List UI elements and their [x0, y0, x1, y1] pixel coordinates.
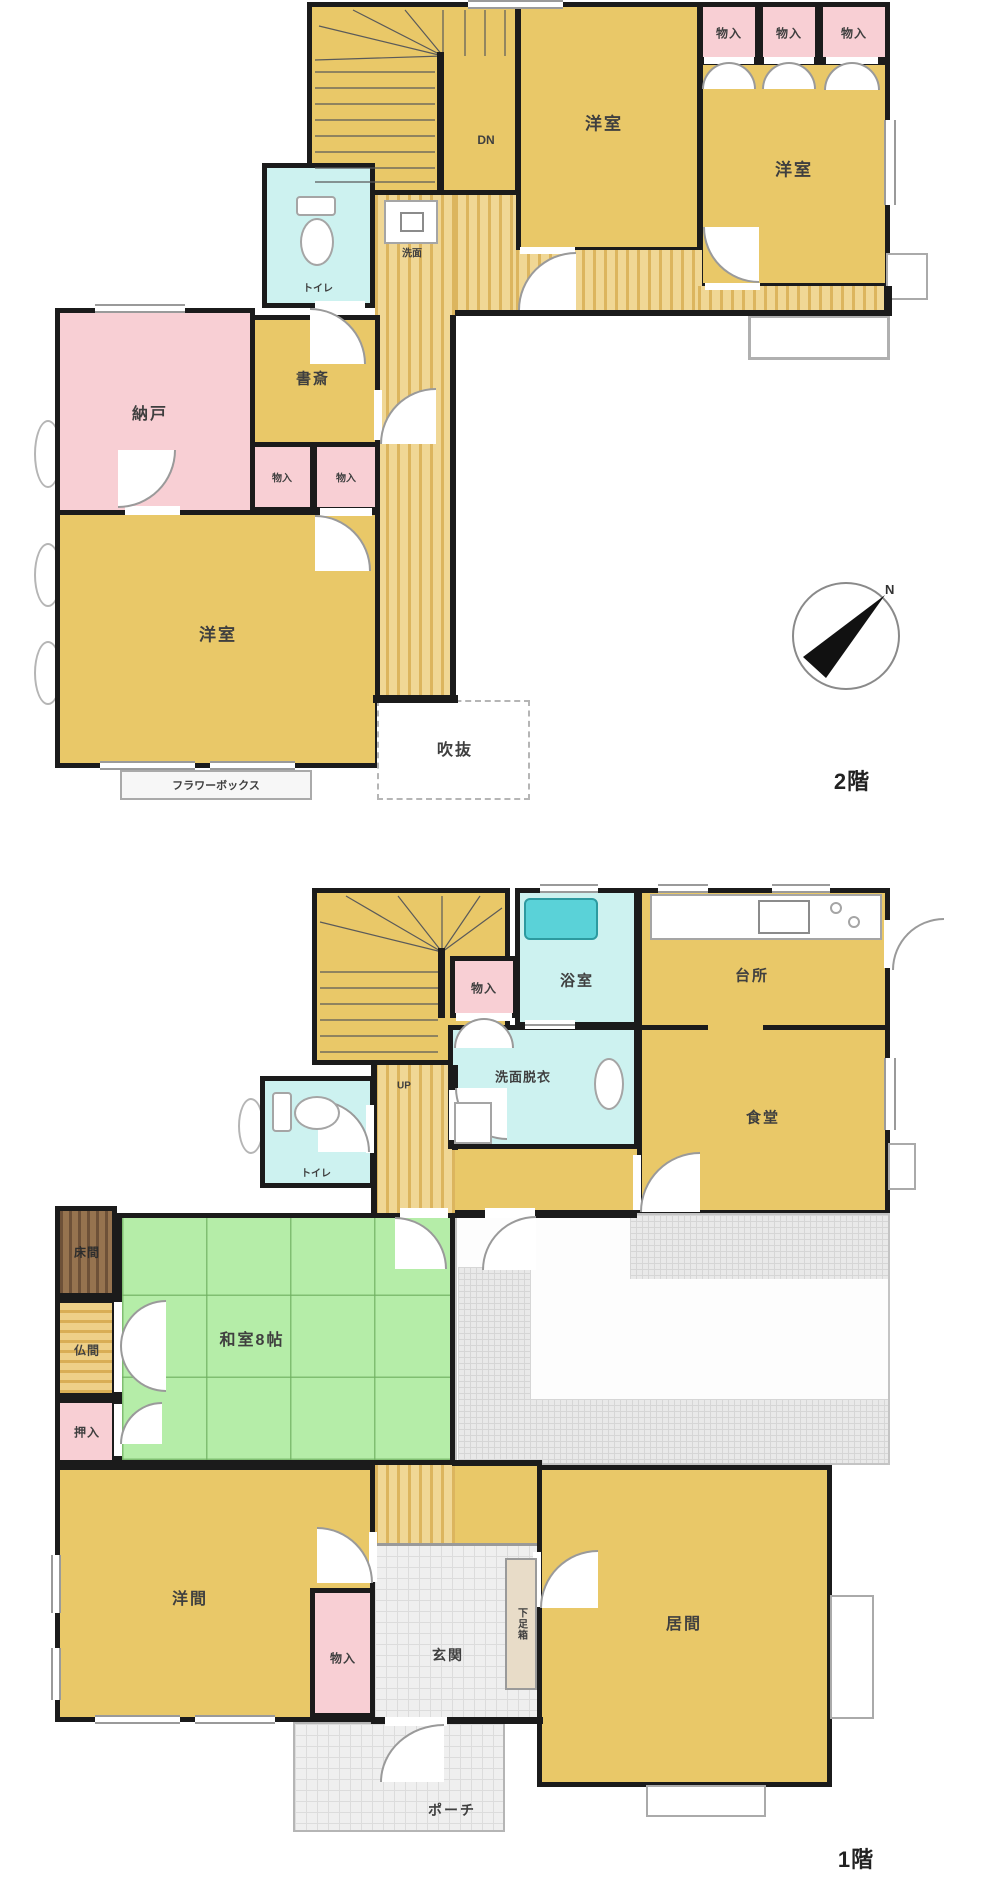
- wall: [455, 310, 516, 316]
- door-opening: [114, 1404, 122, 1456]
- label-shokudo: 食堂: [746, 1107, 780, 1128]
- floor-label-2f: 2階: [834, 764, 870, 796]
- label-stairs-dn: DN: [477, 133, 494, 147]
- wash-basin-2f: [400, 212, 424, 232]
- label-tokonoma: 床間: [74, 1244, 100, 1261]
- window: [210, 761, 295, 770]
- window: [884, 120, 896, 205]
- label-butsuma: 仏間: [74, 1342, 100, 1359]
- label-toilet-1f: トイレ: [301, 1165, 331, 1180]
- floor-plan: 物入 物入 物入 洋室 洋室 DN トイレ 洗面 納戸 書斎 物入 物入 洋室 …: [0, 0, 1000, 1880]
- stove-burner: [830, 902, 842, 914]
- hallway-2f-junction: [455, 195, 516, 315]
- window: [468, 0, 563, 9]
- toilet-tank: [272, 1092, 292, 1132]
- door-opening: [400, 1208, 448, 1218]
- label-monoiri: 物入: [330, 1650, 356, 1667]
- label-monoiri: 物入: [272, 470, 292, 485]
- label-genkan: 玄関: [432, 1645, 464, 1665]
- label-washitsu: 和室8帖: [220, 1326, 285, 1350]
- hallway-2f-main: [375, 195, 455, 700]
- wall: [884, 286, 892, 316]
- compass-icon: N: [788, 578, 904, 694]
- label-daidokoro: 台所: [735, 965, 769, 986]
- door-opening: [705, 283, 760, 290]
- terrace-hatch-bottom: [458, 1399, 888, 1463]
- wall: [516, 310, 702, 316]
- bay-box-2f: [886, 253, 928, 300]
- label-monoiri: 物入: [336, 470, 356, 485]
- label-yoshitsu-c: 洋室: [199, 621, 237, 646]
- sliding-door: [525, 1024, 575, 1026]
- label-senmen-2f: 洗面: [402, 245, 422, 260]
- window: [772, 884, 830, 893]
- window: [195, 1715, 275, 1724]
- label-porch: ポーチ: [428, 1800, 476, 1820]
- label-flower-box: フラワーボックス: [172, 777, 260, 793]
- label-ima: 居間: [666, 1610, 702, 1634]
- hallway-1f-passage: [455, 1147, 637, 1215]
- stairs-treads-2f: [307, 2, 520, 195]
- window: [884, 1058, 896, 1130]
- label-fukinuke: 吹抜: [437, 736, 473, 760]
- compass-north-label: N: [885, 582, 894, 597]
- label-yoma: 洋間: [172, 1585, 208, 1609]
- kitchen-sink: [758, 900, 810, 934]
- label-monoiri: 物入: [471, 980, 497, 997]
- door-opening: [884, 920, 892, 968]
- bay-window-ima-right: [830, 1595, 874, 1719]
- door-opening: [125, 506, 180, 515]
- label-stairs-up: UP: [397, 1081, 411, 1092]
- serving-opening: [708, 1025, 763, 1037]
- window: [51, 1648, 61, 1700]
- floor-label-1f: 1階: [838, 1842, 874, 1874]
- wall: [373, 695, 458, 703]
- door-arc: [892, 918, 944, 970]
- label-yoshitsu-b: 洋室: [775, 156, 813, 181]
- label-oshiire: 押入: [74, 1424, 100, 1441]
- wall: [698, 310, 890, 316]
- label-toilet-2f: トイレ: [303, 280, 333, 295]
- bay-box-shokudo: [888, 1143, 916, 1190]
- window: [540, 884, 598, 893]
- washer-pan: [454, 1102, 492, 1144]
- wall: [450, 315, 456, 700]
- label-monoiri: 物入: [776, 25, 802, 42]
- label-getabako: 下足箱: [514, 1608, 529, 1641]
- label-shosai: 書斎: [296, 368, 330, 389]
- window: [658, 884, 708, 893]
- bathtub: [524, 898, 598, 940]
- hallway-1f-to-ima: [455, 1465, 537, 1545]
- label-monoiri: 物入: [841, 25, 867, 42]
- door-opening: [320, 508, 372, 516]
- toilet-tank: [296, 196, 336, 216]
- toilet-bowl: [300, 218, 334, 266]
- window: [95, 1715, 180, 1724]
- bay-window-ima-bottom: [646, 1785, 766, 1817]
- genkan-step: [375, 1543, 537, 1546]
- toilet-bowl: [294, 1096, 340, 1130]
- balcony-2f: [748, 315, 890, 360]
- stove-burner: [848, 916, 860, 928]
- label-monoiri: 物入: [716, 25, 742, 42]
- label-senmen-datsui: 洗面脱衣: [495, 1067, 551, 1086]
- window: [51, 1555, 61, 1613]
- window: [95, 304, 185, 313]
- wall: [455, 1210, 637, 1218]
- label-yoshitsu-a: 洋室: [585, 110, 623, 135]
- window: [100, 761, 195, 770]
- wall: [452, 1460, 542, 1466]
- label-nando: 納戸: [132, 400, 168, 424]
- terrace-hatch-top: [630, 1215, 888, 1279]
- label-yokushitsu: 浴室: [560, 970, 594, 991]
- toilet-bowl-washroom: [594, 1058, 624, 1110]
